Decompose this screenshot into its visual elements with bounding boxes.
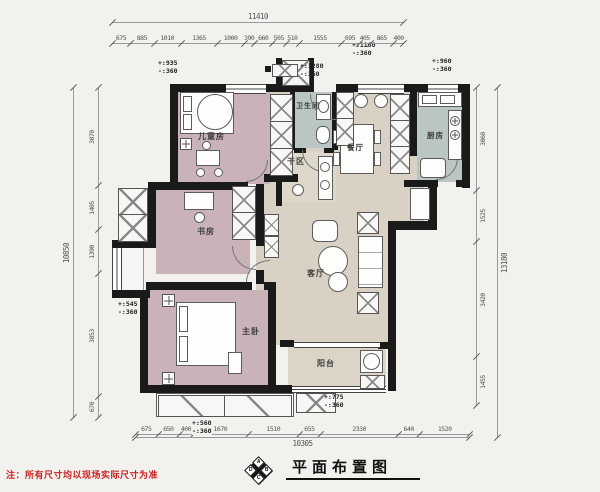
- dim-segment: 1510: [248, 419, 298, 434]
- children-duvet: [197, 94, 233, 130]
- dim-segment-label: 675: [116, 34, 126, 42]
- kitchen-sink: [440, 95, 455, 104]
- dim-segment-label: 675: [141, 425, 151, 433]
- stove-burner: [450, 116, 460, 126]
- dim-segment: 1555: [299, 27, 341, 43]
- dim-segment-label: 1000: [224, 34, 238, 42]
- compass-letter: C: [257, 476, 261, 481]
- room-label-bathroom: 卫生间: [296, 101, 320, 111]
- dim-segment-label: 650: [163, 425, 173, 433]
- hall-cabinet: [410, 188, 430, 220]
- wall-segment: [388, 349, 396, 391]
- elevation-label-entry: +:1280 -:360: [300, 62, 323, 78]
- dim-segment: 405: [359, 27, 370, 43]
- wall-segment: [146, 282, 252, 290]
- pillow: [179, 336, 188, 362]
- stove-burner: [450, 130, 460, 140]
- dim-segment: 2330: [320, 419, 398, 434]
- dim-segment: 1405: [84, 186, 98, 231]
- washbasin: [320, 180, 330, 190]
- flue-hatch: [118, 188, 148, 216]
- dim-segment: 1365: [181, 27, 218, 43]
- kitchen-sink: [422, 95, 437, 104]
- dim-segment: 1525: [477, 191, 491, 242]
- study-closet-hatch: [232, 212, 256, 240]
- wall-segment: [148, 182, 156, 248]
- dim-segment: 1390: [84, 230, 98, 274]
- dim-segment-label: 865: [377, 34, 387, 42]
- wall-segment: [404, 84, 428, 92]
- chair: [196, 168, 205, 177]
- floor-plan-canvas: 儿童房 卫生间 干区 餐厅 厨房 书房 主卧 客厅 阳台 +:935 -:360…: [0, 0, 600, 492]
- plant-stand-hatch: [357, 212, 379, 234]
- dim-total-label: 10850: [62, 243, 71, 263]
- dim-chain-top: 6758851010136510003906605055101555695405…: [112, 27, 404, 44]
- room-label-study: 书房: [197, 226, 215, 237]
- dim-segment: 1000: [217, 27, 244, 43]
- dim-segment-label: 3853: [88, 329, 96, 343]
- sofa: [358, 236, 383, 288]
- wall-segment: [268, 290, 276, 387]
- dim-segment: 400: [393, 27, 404, 43]
- dim-segment: 695: [341, 27, 360, 43]
- dim-segment: 3420: [477, 242, 491, 357]
- wardrobe-hatch: [270, 121, 293, 150]
- dining-chair: [374, 152, 381, 166]
- dim-segment-label: 660: [258, 34, 268, 42]
- dim-segment: 1455: [477, 357, 491, 406]
- wall-segment: [170, 84, 178, 190]
- elevation-minus: -:360: [432, 65, 452, 73]
- dim-segment: 400: [179, 419, 192, 434]
- dim-segment: 3060: [477, 88, 491, 191]
- dim-segment: 1010: [154, 27, 181, 43]
- dining-chair: [333, 152, 340, 166]
- dim-segment-label: 1405: [88, 201, 96, 215]
- elevation-plus: +:560: [192, 419, 212, 427]
- wall-segment: [410, 92, 417, 156]
- compass-letter: A: [257, 460, 261, 465]
- elevation-label-left-bay: +:545 -:360: [118, 300, 138, 316]
- bar-stool: [354, 94, 368, 108]
- elevation-minus: -:360: [352, 49, 375, 57]
- wall-segment: [388, 230, 396, 344]
- dim-segment-label: 1510: [267, 425, 281, 433]
- dim-segment-label: 400: [393, 34, 403, 42]
- room-label-dining: 餐厅: [347, 142, 364, 153]
- dim-total-top: 11410: [112, 9, 404, 23]
- dim-segment-label: 1455: [479, 375, 487, 389]
- wall-segment: [140, 294, 148, 393]
- room-label-balcony: 阳台: [317, 358, 335, 369]
- symbol-square: [265, 66, 271, 72]
- dim-segment-label: 670: [88, 402, 96, 412]
- plant-stand-hatch: [357, 292, 379, 314]
- entry-closet-hatch: [336, 92, 354, 120]
- children-desk: [196, 150, 220, 166]
- dim-segment-label: 640: [404, 425, 414, 433]
- chair: [194, 212, 205, 223]
- wall-segment: [280, 340, 294, 347]
- pillow: [183, 96, 192, 112]
- elevation-label-balcony: +:775 -:360: [324, 393, 344, 409]
- chair: [214, 168, 223, 177]
- dim-segment: 675: [112, 27, 130, 43]
- wardrobe-hatch: [270, 94, 293, 123]
- dining-chair: [374, 130, 381, 144]
- dim-segment-label: 885: [137, 34, 147, 42]
- elevation-minus: -:360: [118, 308, 138, 316]
- dim-segment: 655: [299, 419, 321, 434]
- chair: [202, 141, 211, 150]
- dining-cabinet-hatch: [390, 120, 410, 148]
- wall-segment: [170, 84, 226, 92]
- dim-segment: 390: [244, 27, 254, 43]
- washbasin: [320, 162, 330, 172]
- wall-segment: [404, 180, 438, 187]
- elevation-plus: +:1280: [300, 62, 323, 70]
- dim-segment-label: 1365: [192, 34, 206, 42]
- wall-segment: [256, 184, 264, 246]
- elevation-label-kitchen: +:960 -:360: [432, 57, 452, 73]
- dim-segment: 1520: [419, 419, 470, 434]
- dim-segment: 650: [158, 419, 180, 434]
- room-label-living: 客厅: [307, 268, 325, 279]
- elevation-plus: +:935: [158, 59, 178, 67]
- entry-cabinet-symbol: [272, 64, 298, 77]
- toilet: [316, 126, 330, 144]
- compass-letter: B: [265, 468, 269, 473]
- flue-hatch: [118, 214, 148, 242]
- dim-segment: 510: [286, 27, 300, 43]
- dim-segment-label: 390: [244, 34, 254, 42]
- nightstand: [162, 294, 175, 307]
- washing-machine-drum: [363, 353, 380, 370]
- study-closet-hatch: [232, 186, 256, 214]
- wall-segment: [336, 84, 358, 92]
- dim-segment-label: 505: [274, 34, 284, 42]
- elevation-minus: -:360: [300, 70, 323, 78]
- armchair: [312, 220, 338, 242]
- dim-total-right: 13180: [497, 88, 511, 438]
- dim-segment: 3853: [84, 274, 98, 396]
- dim-segment-label: 1390: [88, 245, 96, 259]
- elevation-label-children: +:935 -:360: [158, 59, 178, 75]
- coffee-table: [328, 272, 348, 292]
- dim-segment-label: 1555: [313, 34, 327, 42]
- dim-segment-label: 2330: [352, 425, 366, 433]
- dresser: [228, 352, 242, 374]
- elevation-plus: +:545: [118, 300, 138, 308]
- dim-segment: 640: [398, 419, 419, 434]
- room-label-kitchen: 厨房: [427, 130, 444, 141]
- dim-segment-label: 1525: [479, 210, 487, 224]
- dim-total-bottom: 10305: [135, 437, 470, 451]
- dining-cabinet-hatch: [390, 146, 410, 174]
- dim-segment-label: 1670: [214, 425, 228, 433]
- dim-segment-label: 405: [360, 34, 370, 42]
- pillow: [179, 306, 188, 332]
- balcony-sliding-door: [294, 342, 380, 348]
- nightstand: [162, 372, 175, 385]
- fridge: [420, 158, 446, 178]
- dim-segment: 505: [272, 27, 286, 43]
- wall-segment: [264, 282, 276, 290]
- bar-stool: [374, 94, 388, 108]
- dim-segment: 885: [130, 27, 154, 43]
- dim-chain-right: 3060152534201455: [476, 88, 491, 406]
- dim-segment-label: 655: [304, 425, 314, 433]
- dim-segment-label: 3420: [479, 293, 487, 307]
- wall-segment: [456, 180, 470, 187]
- elevation-label-master-bottom: +:560 -:360: [192, 419, 212, 435]
- dim-segment-label: 695: [345, 34, 355, 42]
- dim-segment: 865: [370, 27, 393, 43]
- dim-segment: 675: [135, 419, 158, 434]
- pedestal-sink: [292, 184, 304, 196]
- room-label-children: 儿童房: [198, 131, 225, 142]
- elevation-minus: -:360: [192, 427, 212, 435]
- wall-segment: [378, 342, 396, 349]
- compass-letter: D: [249, 468, 253, 473]
- bay-window-glass: [112, 248, 122, 292]
- elevation-plus: +:775: [324, 393, 344, 401]
- dim-chain-left: 3070140513903853670: [84, 88, 99, 418]
- dim-segment: 670: [84, 397, 98, 418]
- elevation-minus: -:360: [158, 67, 178, 75]
- dim-total-label: 11410: [248, 12, 268, 21]
- dining-cabinet-hatch: [390, 94, 410, 122]
- dim-segment-label: 510: [287, 34, 297, 42]
- elevation-plus: +:960: [432, 57, 452, 65]
- bottom-closet-hatch: [158, 395, 226, 417]
- wall-segment: [388, 221, 437, 230]
- dim-total-label: 13180: [500, 253, 509, 273]
- tv-cabinet-hatch: [264, 236, 279, 258]
- window: [358, 84, 404, 94]
- compass-icon: A B C D: [244, 456, 274, 486]
- balcony-cabinet-hatch: [360, 375, 385, 389]
- floor-plan-title: 平面布置图: [292, 456, 392, 477]
- dim-segment-label: 1520: [438, 425, 452, 433]
- room-label-master: 主卧: [242, 326, 260, 337]
- dim-segment-label: 400: [181, 425, 191, 433]
- room-label-dry: 干区: [287, 156, 305, 167]
- dim-segment: 660: [254, 27, 272, 43]
- dim-total-left: 10850: [60, 88, 74, 418]
- dim-chain-bottom: 6756504001670151065523306401520: [135, 419, 470, 435]
- note-text: 注：所有尺寸均以现场实际尺寸为准: [6, 468, 158, 481]
- dim-segment-label: 3060: [479, 133, 487, 147]
- elevation-minus: -:360: [324, 401, 344, 409]
- nightstand: [180, 138, 192, 150]
- bottom-closet-hatch: [224, 395, 292, 417]
- pillow: [183, 114, 192, 130]
- study-desk: [184, 192, 214, 210]
- dim-segment-label: 3070: [88, 130, 96, 144]
- tv-cabinet-hatch: [264, 214, 279, 236]
- wall-segment: [462, 84, 470, 188]
- dim-segment: 3070: [84, 88, 98, 186]
- dim-total-label: 10305: [292, 439, 312, 448]
- title-underline: [286, 478, 420, 480]
- dim-segment-label: 1010: [160, 34, 174, 42]
